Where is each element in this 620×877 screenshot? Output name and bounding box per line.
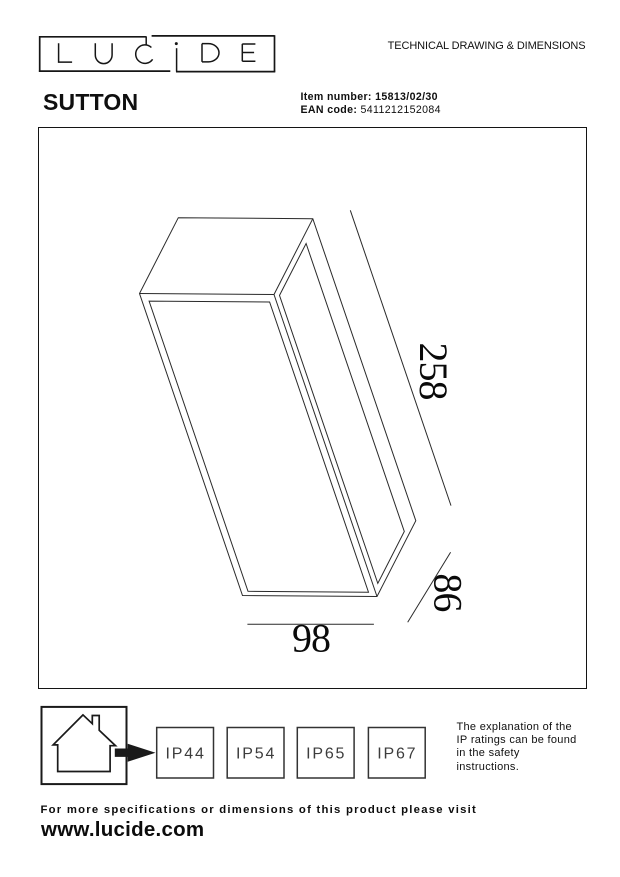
svg-text:IP44: IP44	[166, 746, 206, 763]
svg-text:IP65: IP65	[306, 746, 346, 763]
svg-text:IP67: IP67	[377, 746, 417, 763]
svg-text:IP54: IP54	[236, 746, 276, 763]
